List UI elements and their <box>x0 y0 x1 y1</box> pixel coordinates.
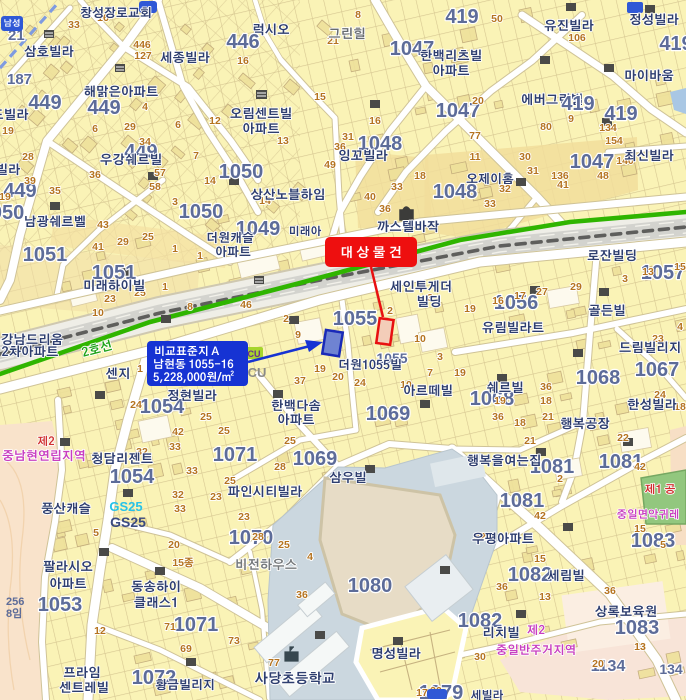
svg-text:8: 8 <box>187 301 193 313</box>
svg-text:15: 15 <box>674 261 686 273</box>
svg-text:1: 1 <box>172 243 178 255</box>
svg-text:1082: 1082 <box>458 610 503 632</box>
svg-text:16: 16 <box>369 115 381 127</box>
svg-text:36: 36 <box>604 585 616 597</box>
svg-text:419: 419 <box>659 33 686 55</box>
svg-text:23: 23 <box>238 511 250 523</box>
svg-text:33: 33 <box>169 441 181 453</box>
svg-text:30: 30 <box>519 151 531 163</box>
svg-text:1054: 1054 <box>110 466 155 488</box>
svg-text:40: 40 <box>364 191 376 203</box>
svg-text:24: 24 <box>354 377 366 389</box>
svg-text:1070: 1070 <box>229 527 274 549</box>
svg-text:23: 23 <box>104 293 116 305</box>
svg-text:28: 28 <box>252 531 264 543</box>
svg-text:25: 25 <box>224 475 236 487</box>
svg-text:13: 13 <box>539 591 551 603</box>
svg-text:33: 33 <box>186 465 198 477</box>
svg-text:19: 19 <box>454 367 466 379</box>
svg-text:13: 13 <box>277 135 289 147</box>
svg-text:36: 36 <box>492 411 504 423</box>
svg-text:4: 4 <box>677 321 683 333</box>
svg-text:41: 41 <box>92 241 104 253</box>
svg-text:43: 43 <box>97 219 109 231</box>
svg-text:1067: 1067 <box>635 359 680 381</box>
svg-text:36: 36 <box>89 169 101 181</box>
svg-text:25: 25 <box>142 231 154 243</box>
svg-text:18: 18 <box>514 417 526 429</box>
svg-text:21: 21 <box>524 435 536 447</box>
svg-text:13: 13 <box>634 641 646 653</box>
svg-text:15: 15 <box>534 553 546 565</box>
svg-text:134: 134 <box>599 122 617 134</box>
svg-text:1071: 1071 <box>174 614 219 636</box>
svg-text:1053: 1053 <box>38 594 83 616</box>
svg-text:20: 20 <box>592 658 604 670</box>
svg-text:1080: 1080 <box>348 575 393 597</box>
svg-text:25: 25 <box>278 539 290 551</box>
svg-text:446: 446 <box>226 31 259 53</box>
svg-text:6: 6 <box>175 119 181 131</box>
svg-text:1050: 1050 <box>179 201 224 223</box>
svg-text:1081: 1081 <box>500 490 545 512</box>
svg-text:19: 19 <box>464 303 476 315</box>
svg-text:32: 32 <box>172 489 184 501</box>
svg-text:20: 20 <box>168 539 180 551</box>
svg-text:36: 36 <box>379 203 391 215</box>
svg-text:9: 9 <box>295 329 301 341</box>
svg-text:23: 23 <box>210 491 222 503</box>
svg-text:34: 34 <box>139 136 151 148</box>
svg-text:46: 46 <box>240 299 252 311</box>
svg-text:29: 29 <box>124 121 136 133</box>
svg-text:30: 30 <box>474 651 486 663</box>
svg-text:2: 2 <box>557 473 563 485</box>
svg-text:19: 19 <box>0 191 11 203</box>
svg-text:77: 77 <box>268 657 280 669</box>
svg-text:8: 8 <box>355 9 361 21</box>
svg-text:134: 134 <box>659 661 683 677</box>
svg-text:58: 58 <box>149 181 161 193</box>
svg-text:33: 33 <box>391 181 403 193</box>
svg-text:33: 33 <box>174 503 186 515</box>
svg-text:419: 419 <box>561 93 594 115</box>
svg-text:25: 25 <box>284 435 296 447</box>
svg-text:20: 20 <box>472 95 484 107</box>
svg-text:19: 19 <box>2 125 14 137</box>
svg-text:17: 17 <box>416 687 428 699</box>
svg-text:2: 2 <box>387 305 393 317</box>
svg-text:3: 3 <box>437 351 443 363</box>
svg-text:7: 7 <box>193 150 199 162</box>
svg-text:1050: 1050 <box>219 161 264 183</box>
svg-text:24: 24 <box>130 399 142 411</box>
svg-text:36: 36 <box>540 381 552 393</box>
svg-text:449: 449 <box>87 97 120 119</box>
svg-text:256: 256 <box>6 596 24 608</box>
svg-text:39: 39 <box>24 175 36 187</box>
svg-text:15종: 15종 <box>172 557 194 569</box>
svg-text:16: 16 <box>492 295 504 307</box>
svg-text:36: 36 <box>496 581 508 593</box>
svg-text:1: 1 <box>162 281 168 293</box>
svg-text:25: 25 <box>200 411 212 423</box>
svg-text:419: 419 <box>445 6 478 28</box>
svg-text:33: 33 <box>68 19 80 31</box>
svg-text:11: 11 <box>469 151 480 163</box>
svg-text:50: 50 <box>491 13 503 25</box>
svg-text:22: 22 <box>617 432 629 444</box>
svg-text:35: 35 <box>49 185 61 197</box>
svg-text:42: 42 <box>534 510 546 522</box>
svg-text:29: 29 <box>570 281 582 293</box>
svg-text:15: 15 <box>634 523 646 535</box>
svg-text:10: 10 <box>414 333 426 345</box>
svg-text:5: 5 <box>93 527 99 539</box>
svg-text:106: 106 <box>568 32 586 44</box>
svg-text:21: 21 <box>542 411 554 423</box>
svg-text:28: 28 <box>274 461 286 473</box>
svg-text:20: 20 <box>332 371 344 383</box>
svg-text:GS25: GS25 <box>109 499 142 514</box>
svg-text:28: 28 <box>22 151 34 163</box>
svg-text:12: 12 <box>209 115 221 127</box>
svg-text:19: 19 <box>314 363 326 375</box>
svg-text:1069: 1069 <box>293 448 338 470</box>
svg-text:154: 154 <box>605 135 623 147</box>
svg-text:41: 41 <box>557 179 569 191</box>
svg-text:6: 6 <box>92 123 98 135</box>
svg-text:42: 42 <box>634 461 646 473</box>
svg-text:48: 48 <box>597 170 609 182</box>
svg-text:1069: 1069 <box>366 403 411 425</box>
svg-text:17: 17 <box>514 290 526 302</box>
svg-text:57: 57 <box>154 167 166 179</box>
svg-text:14: 14 <box>204 175 216 187</box>
svg-text:29: 29 <box>117 236 129 248</box>
svg-text:37: 37 <box>294 375 306 387</box>
svg-text:18: 18 <box>414 170 426 182</box>
svg-text:16: 16 <box>237 55 249 67</box>
svg-text:187: 187 <box>7 71 32 88</box>
svg-text:1083: 1083 <box>615 617 660 639</box>
svg-text:7: 7 <box>427 367 433 379</box>
svg-text:1: 1 <box>197 250 203 262</box>
svg-text:25: 25 <box>218 425 230 437</box>
svg-text:77: 77 <box>469 130 481 142</box>
svg-text:1071: 1071 <box>213 444 258 466</box>
svg-text:1051: 1051 <box>23 244 68 266</box>
svg-text:15: 15 <box>314 91 326 103</box>
svg-text:69: 69 <box>180 643 192 655</box>
svg-text:42: 42 <box>172 426 184 438</box>
svg-text:449: 449 <box>28 92 61 114</box>
svg-text:4: 4 <box>307 551 313 563</box>
svg-text:19: 19 <box>494 395 506 407</box>
svg-text:1068: 1068 <box>576 367 621 389</box>
svg-text:3: 3 <box>172 196 178 208</box>
svg-text:127: 127 <box>134 50 152 62</box>
svg-text:36: 36 <box>296 589 308 601</box>
svg-text:3: 3 <box>622 273 628 285</box>
svg-text:80: 80 <box>540 121 552 133</box>
svg-text:12: 12 <box>94 625 106 637</box>
svg-text:1: 1 <box>137 363 143 375</box>
svg-text:5: 5 <box>660 539 666 551</box>
svg-text:73: 73 <box>228 635 240 647</box>
svg-text:CU: CU <box>248 365 267 380</box>
svg-text:1048: 1048 <box>433 181 478 203</box>
svg-text:27: 27 <box>536 286 548 298</box>
svg-text:31: 31 <box>527 165 539 177</box>
svg-text:10: 10 <box>92 307 104 319</box>
svg-text:1055: 1055 <box>333 308 378 330</box>
svg-text:GS25: GS25 <box>110 514 146 530</box>
svg-text:1050: 1050 <box>0 202 24 224</box>
svg-text:33: 33 <box>484 198 496 210</box>
svg-text:1082: 1082 <box>508 564 553 586</box>
svg-text:13: 13 <box>642 266 654 278</box>
svg-text:71: 71 <box>164 621 176 633</box>
svg-text:8임: 8임 <box>6 607 22 620</box>
svg-text:18: 18 <box>540 395 552 407</box>
svg-text:49: 49 <box>324 159 336 171</box>
svg-text:CU: CU <box>248 349 261 359</box>
svg-text:2: 2 <box>283 313 289 325</box>
svg-text:4: 4 <box>142 101 148 113</box>
